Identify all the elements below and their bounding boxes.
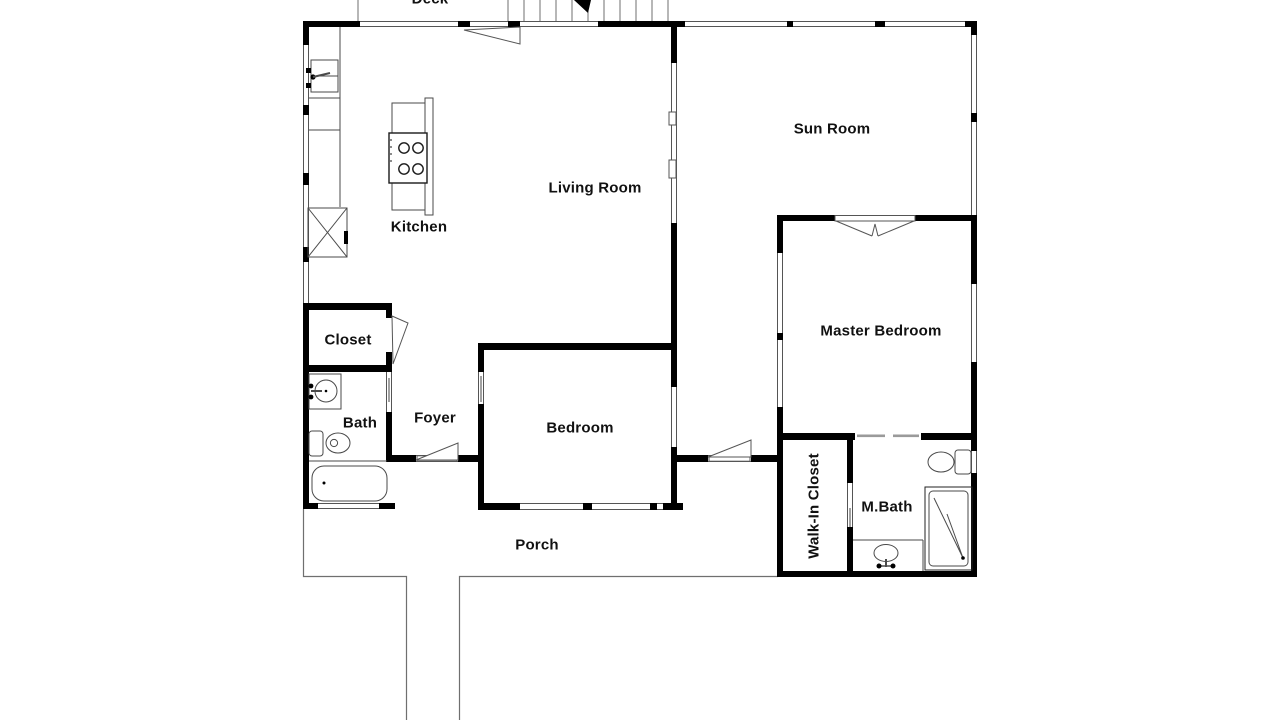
floor-plan-drawing [0, 0, 1280, 720]
kitchen-sink-icon [306, 60, 338, 92]
room-label-bedroom: Bedroom [546, 420, 613, 437]
mbath-toilet-icon [928, 450, 971, 474]
floor-plan: Deck Living Room Sun Room Kitchen Master… [0, 0, 1280, 720]
room-label-foyer: Foyer [414, 410, 456, 427]
wall-face-lines [303, 21, 977, 577]
bathtub-icon [312, 466, 387, 501]
window-mullions [669, 112, 676, 178]
master-opening-dashes [857, 435, 919, 438]
deck-and-stairs [358, 0, 668, 21]
room-label-bath: Bath [343, 415, 377, 432]
bath-sink-icon [309, 374, 341, 409]
room-label-walk-in-closet: Walk-In Closet [806, 453, 823, 559]
closet-bifold-door [392, 316, 408, 364]
room-label-deck: Deck [412, 0, 449, 8]
room-label-closet: Closet [324, 332, 371, 349]
bath-toilet-icon [309, 431, 350, 456]
shower-icon [925, 487, 972, 570]
room-label-master-bedroom: Master Bedroom [820, 323, 941, 340]
room-label-m-bath: M.Bath [861, 499, 912, 516]
bath-fixtures [309, 374, 387, 501]
front-door-swing [416, 443, 458, 460]
kitchen-counter [309, 27, 340, 207]
room-label-living-room: Living Room [548, 180, 641, 197]
doors [389, 27, 919, 527]
master-french-door [835, 216, 915, 237]
stove-icon [389, 133, 427, 183]
room-label-porch: Porch [515, 537, 559, 554]
appliance-icon [308, 208, 348, 257]
vanity-sink-icon [874, 545, 898, 569]
corridor-door-swing [708, 440, 751, 457]
room-label-sun-room: Sun Room [794, 121, 871, 138]
walls [303, 21, 977, 577]
room-label-kitchen: Kitchen [391, 219, 447, 236]
back-door-swing [464, 27, 520, 44]
